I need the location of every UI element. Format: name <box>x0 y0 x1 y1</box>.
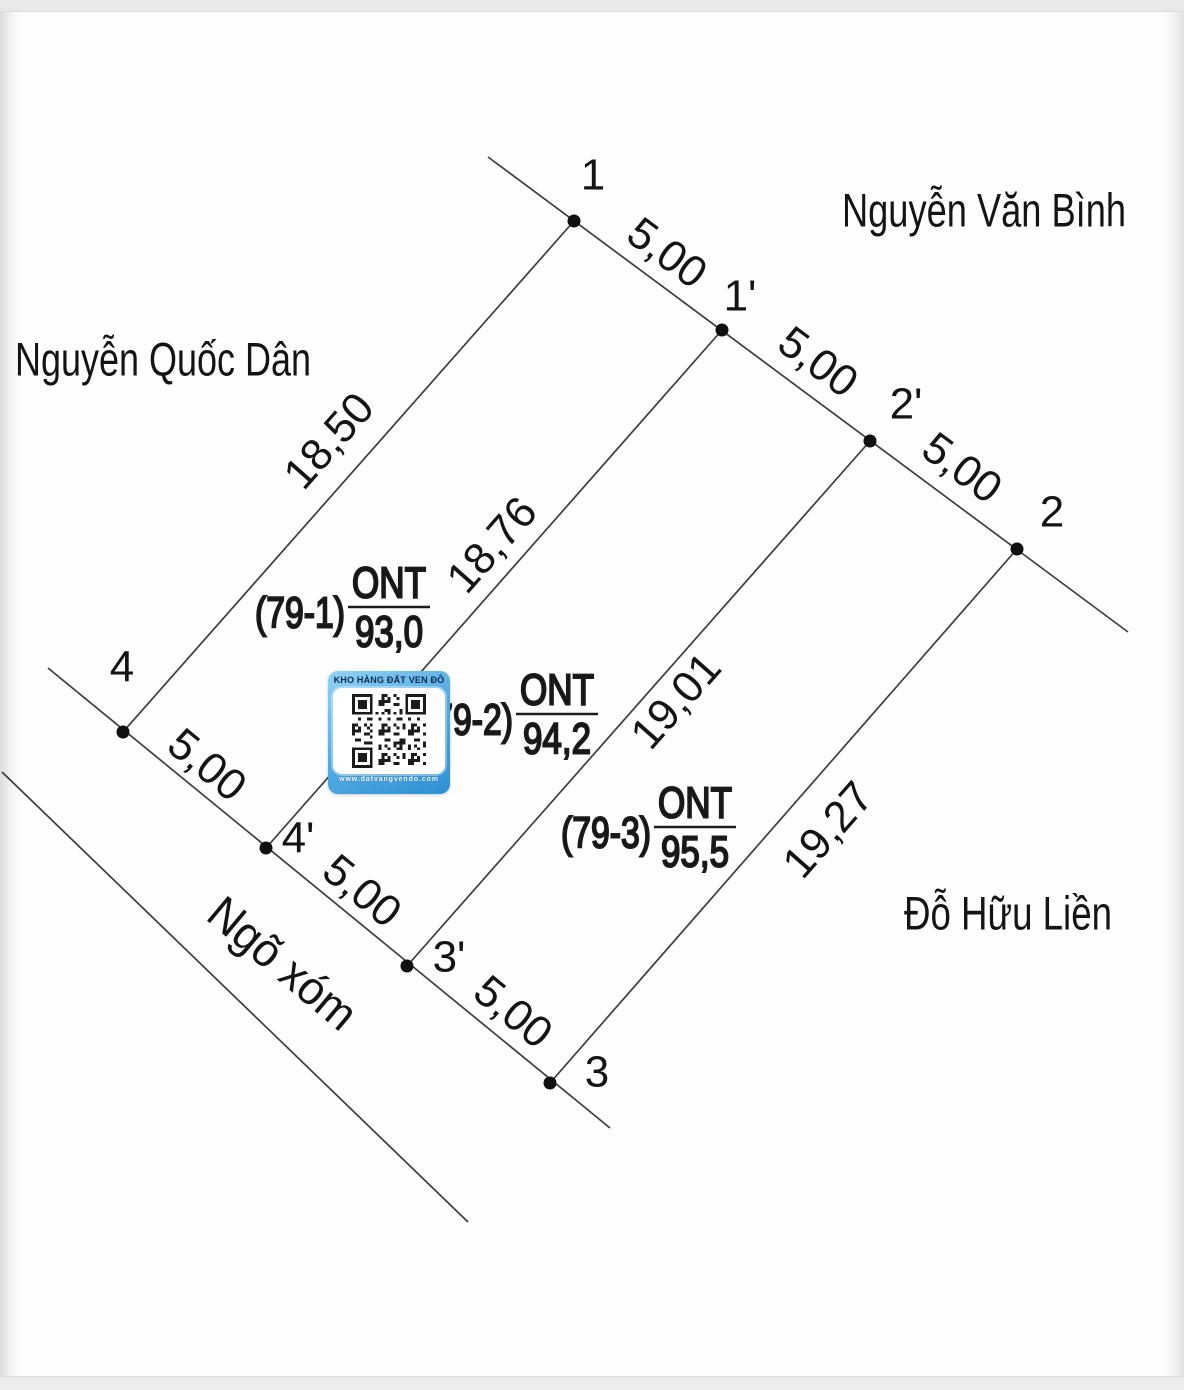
vertex-point-4 <box>117 726 130 739</box>
plot-parcel-label: (79-3) <box>561 809 651 858</box>
scan-edge-bottom <box>0 1376 1184 1390</box>
vertex-point-2 <box>1011 543 1024 556</box>
plot-area-label: 93,0 <box>355 608 423 657</box>
vertex-label: 3 <box>585 1048 609 1097</box>
vertex-point-4-prime <box>260 842 273 855</box>
vertex-label: 4 <box>110 643 134 692</box>
vertex-label: 2' <box>890 380 923 429</box>
dimension-label: 5,00 <box>769 317 867 407</box>
plot-landuse-label: ONT <box>352 559 426 608</box>
street-name-label: Đỗ Hữu Liền <box>904 887 1112 940</box>
vertex-point-3 <box>544 1077 557 1090</box>
dimension-label: 18,76 <box>437 488 547 603</box>
dimension-label: 5,00 <box>464 966 561 1058</box>
vertex-point-2-prime <box>864 435 877 448</box>
vertex-label: 3' <box>433 933 466 982</box>
plot-area-label: 95,5 <box>661 828 729 877</box>
qr-code <box>333 688 445 774</box>
qr-badge-title: KHO HÀNG ĐẤT VEN ĐÔ <box>334 674 445 687</box>
plot-parcel-label: (79-1) <box>255 589 345 638</box>
vertex-point-1 <box>568 215 581 228</box>
plot-landuse-label: ONT <box>520 666 594 715</box>
left-boundary-line <box>123 221 574 732</box>
dimension-label: 18,50 <box>274 384 384 499</box>
dimension-label: 5,00 <box>618 208 716 298</box>
alley-edge-line <box>2 772 468 1222</box>
qr-badge: KHO HÀNG ĐẤT VEN ĐÔ www.datvangvendo.com <box>328 671 450 794</box>
dimension-label: 5,00 <box>913 423 1011 513</box>
vertex-point-3-prime <box>401 960 414 973</box>
vertex-point-1-prime <box>716 324 729 337</box>
street-name-label: Nguyễn Quốc Dân <box>15 333 311 386</box>
land-plot-diagram: ONT93,0(79-1)ONT94,2(79-2)ONT95,5(79-3)5… <box>0 0 1184 1390</box>
plot-landuse-label: ONT <box>658 779 732 828</box>
qr-badge-url: www.datvangvendo.com <box>339 776 439 783</box>
vertex-label: 1' <box>724 272 757 321</box>
vertex-label: 2 <box>1040 488 1064 537</box>
vertex-label: 4' <box>282 814 315 863</box>
cadastral-diagram-page: ONT93,0(79-1)ONT94,2(79-2)ONT95,5(79-3)5… <box>0 0 1184 1390</box>
street-name-label: Nguyễn Văn Bình <box>842 184 1126 237</box>
qr-code-icon <box>352 694 426 768</box>
dimension-label: 5,00 <box>313 845 410 937</box>
plot-area-label: 94,2 <box>523 715 591 764</box>
vertex-label: 1 <box>581 151 605 200</box>
dimension-label: 19,27 <box>773 773 883 888</box>
